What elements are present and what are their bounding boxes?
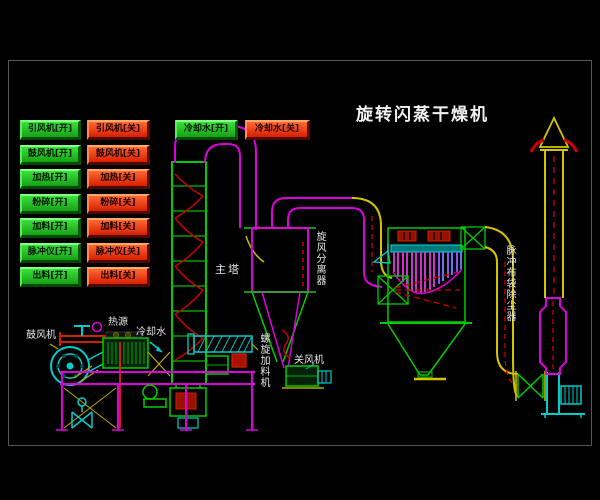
rotary-airlock-valve	[282, 364, 331, 388]
label-cyclone-separator: 旋风分离器	[313, 231, 325, 286]
label-blower: 鼓风机	[26, 330, 56, 342]
induced-fan-on-button[interactable]: 引风机[开]	[20, 120, 81, 140]
valve-handwheel	[74, 326, 90, 336]
feeder-on-button[interactable]: 加料[开]	[20, 218, 81, 238]
blower-fan	[50, 344, 103, 385]
label-cooling-water: 冷却水	[136, 327, 166, 339]
hot-air-pipe-valve	[60, 323, 106, 347]
bag-dust-collector	[374, 227, 485, 379]
main-tower	[172, 162, 206, 384]
induced-fan-off-button[interactable]: 引风机[关]	[87, 120, 150, 140]
induced-draft-fan	[541, 372, 585, 418]
cooling-water-pointer	[150, 342, 162, 352]
heating-on-button[interactable]: 加热[开]	[20, 169, 81, 189]
heating-off-button[interactable]: 加热[关]	[87, 169, 150, 189]
blower-on-button[interactable]: 鼓风机[开]	[20, 145, 81, 165]
tower-to-cyclone-duct	[175, 126, 264, 262]
scada-window: 旋转闪蒸干燥机 主塔 旋风分离器 脉冲布袋除尘器 关风机 螺旋加料机 热源 冷却…	[0, 0, 600, 500]
pulse-on-button[interactable]: 脉冲仪[开]	[20, 243, 81, 263]
label-screw-feeder: 螺旋加料机	[257, 333, 269, 388]
feeder-off-button[interactable]: 加料[关]	[87, 218, 150, 238]
fan-inlet-valve	[516, 371, 545, 401]
label-rotary-airlock: 关风机	[294, 355, 324, 367]
cyclone-to-bagfilter-duct	[272, 198, 392, 287]
discharge-off-button[interactable]: 出料[关]	[87, 267, 150, 287]
air-flow-lines	[395, 272, 460, 308]
drain-valve	[72, 398, 92, 428]
screw-feeder	[188, 334, 258, 374]
pressure-gauge	[93, 323, 102, 332]
inlet-diffuser	[378, 276, 408, 304]
cooling-water-on-button[interactable]: 冷却水[开]	[175, 120, 238, 140]
heater	[74, 332, 170, 382]
crusher-off-button[interactable]: 粉碎[关]	[87, 194, 150, 214]
pump	[143, 385, 166, 407]
tower-spiral	[175, 174, 203, 360]
exhaust-stack	[531, 118, 577, 298]
page-title: 旋转闪蒸干燥机	[356, 109, 489, 121]
cooling-water-off-button[interactable]: 冷却水[关]	[245, 120, 310, 140]
label-bag-dust-collector: 脉冲布袋除尘器	[503, 245, 515, 322]
pulse-valve-block	[398, 231, 416, 241]
label-heat-source: 热源	[108, 317, 128, 329]
filter-bags	[394, 252, 461, 293]
pulse-valve-block	[428, 231, 450, 241]
silencer	[540, 298, 566, 374]
tube-sheet	[391, 245, 462, 252]
label-main-tower: 主塔	[215, 264, 241, 276]
crusher-on-button[interactable]: 粉碎[开]	[20, 194, 81, 214]
pulse-off-button[interactable]: 脉冲仪[关]	[87, 243, 150, 263]
discharge-on-button[interactable]: 出料[开]	[20, 267, 81, 287]
blower-off-button[interactable]: 鼓风机[关]	[87, 145, 150, 165]
